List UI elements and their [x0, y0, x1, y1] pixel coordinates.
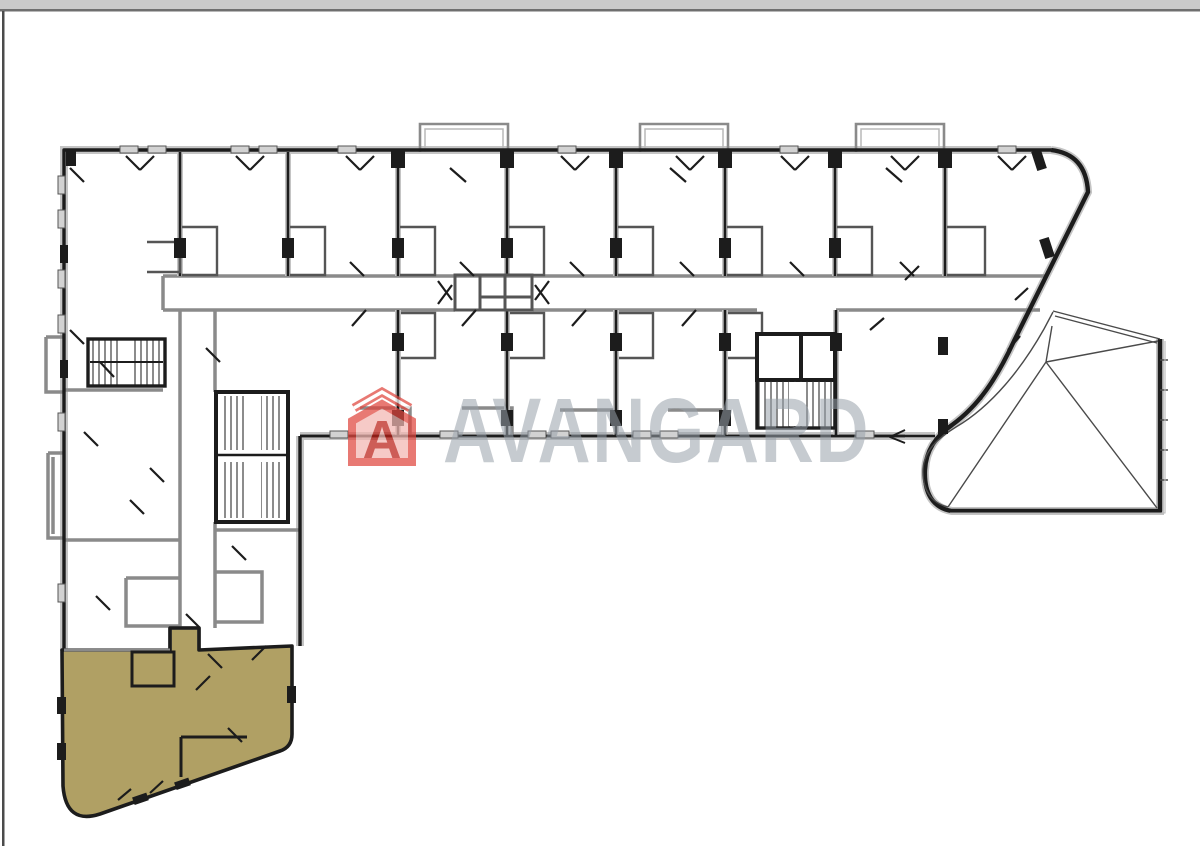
elevator-shaft: [757, 334, 801, 380]
left-edge-line: [2, 11, 5, 846]
elevator-shaft: [801, 334, 835, 380]
watermark-text: AVANGARD: [443, 379, 870, 482]
top-bar: [0, 0, 1200, 9]
top-bar-border: [0, 9, 1200, 12]
avangard-logo: A: [352, 392, 412, 470]
logo-letter: A: [363, 410, 402, 470]
floor-plan-canvas: A AVANGARD: [0, 0, 1200, 846]
floorplan-screenshot: A AVANGARD: [0, 0, 1200, 846]
